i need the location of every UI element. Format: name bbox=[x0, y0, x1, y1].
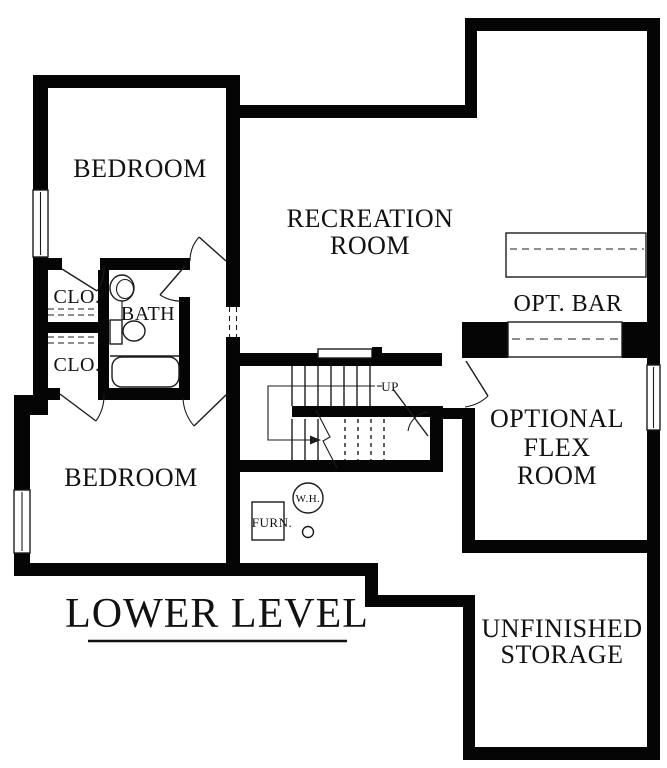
label-opt-bar: OPT. BAR bbox=[514, 291, 623, 317]
bathtub bbox=[110, 356, 180, 387]
bar-counter bbox=[506, 233, 646, 277]
floor-plan-drawing: BEDROOM CLO. BATH CLO. BEDROOM RECREATIO… bbox=[0, 0, 667, 768]
label-water-heater: W.H. bbox=[296, 493, 321, 505]
label-flex-3: ROOM bbox=[517, 461, 597, 490]
stair-railing bbox=[318, 347, 382, 360]
label-recreation-2: ROOM bbox=[330, 231, 410, 260]
plan-title: LOWER LEVEL bbox=[65, 591, 369, 637]
floor-plan-page: BEDROOM CLO. BATH CLO. BEDROOM RECREATIO… bbox=[0, 0, 667, 768]
floor-drain bbox=[303, 527, 314, 538]
cased-opening-flex bbox=[508, 322, 622, 357]
plan-title-group: LOWER LEVEL bbox=[65, 591, 369, 641]
door-bedroom-upper bbox=[190, 237, 226, 261]
window-flex-room bbox=[647, 365, 660, 430]
bath-fixtures bbox=[110, 275, 180, 387]
stair-break-line bbox=[316, 410, 337, 468]
label-closet-lower: CLO. bbox=[54, 354, 101, 376]
label-closet-upper: CLO. bbox=[54, 286, 101, 308]
window-bedroom-upper bbox=[33, 190, 48, 257]
label-flex-1: OPTIONAL bbox=[490, 404, 624, 433]
door-bath bbox=[160, 266, 185, 301]
label-flex-2: FLEX bbox=[524, 433, 591, 462]
label-stairs-up: UP bbox=[381, 379, 399, 394]
label-bedroom-lower: BEDROOM bbox=[64, 463, 198, 492]
label-storage-2: STORAGE bbox=[501, 640, 624, 669]
label-recreation-1: RECREATION bbox=[287, 204, 454, 233]
door-closet-lower bbox=[60, 394, 104, 421]
label-furnace: FURN. bbox=[252, 515, 292, 530]
cased-opening-hall bbox=[226, 307, 240, 337]
label-bath: BATH bbox=[121, 303, 175, 325]
label-bedroom-upper: BEDROOM bbox=[73, 154, 207, 183]
door-flex-room bbox=[465, 361, 488, 407]
window-bedroom-lower bbox=[14, 490, 30, 553]
label-storage-1: UNFINISHED bbox=[482, 614, 643, 643]
